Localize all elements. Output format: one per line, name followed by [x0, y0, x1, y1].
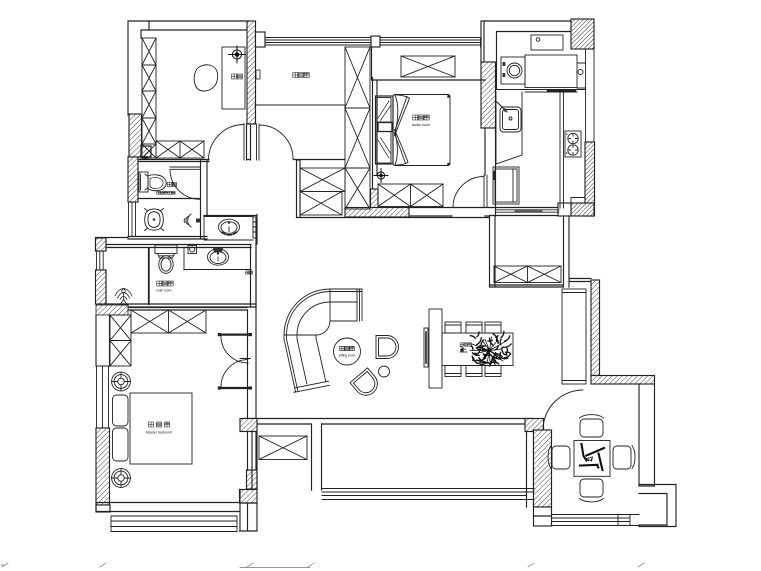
svg-text:Asian room: Asian room: [412, 123, 430, 127]
svg-text:sitting room: sitting room: [339, 354, 356, 358]
svg-text:Master bedroom: Master bedroom: [146, 431, 172, 435]
svg-text:mall room: mall room: [157, 289, 172, 293]
